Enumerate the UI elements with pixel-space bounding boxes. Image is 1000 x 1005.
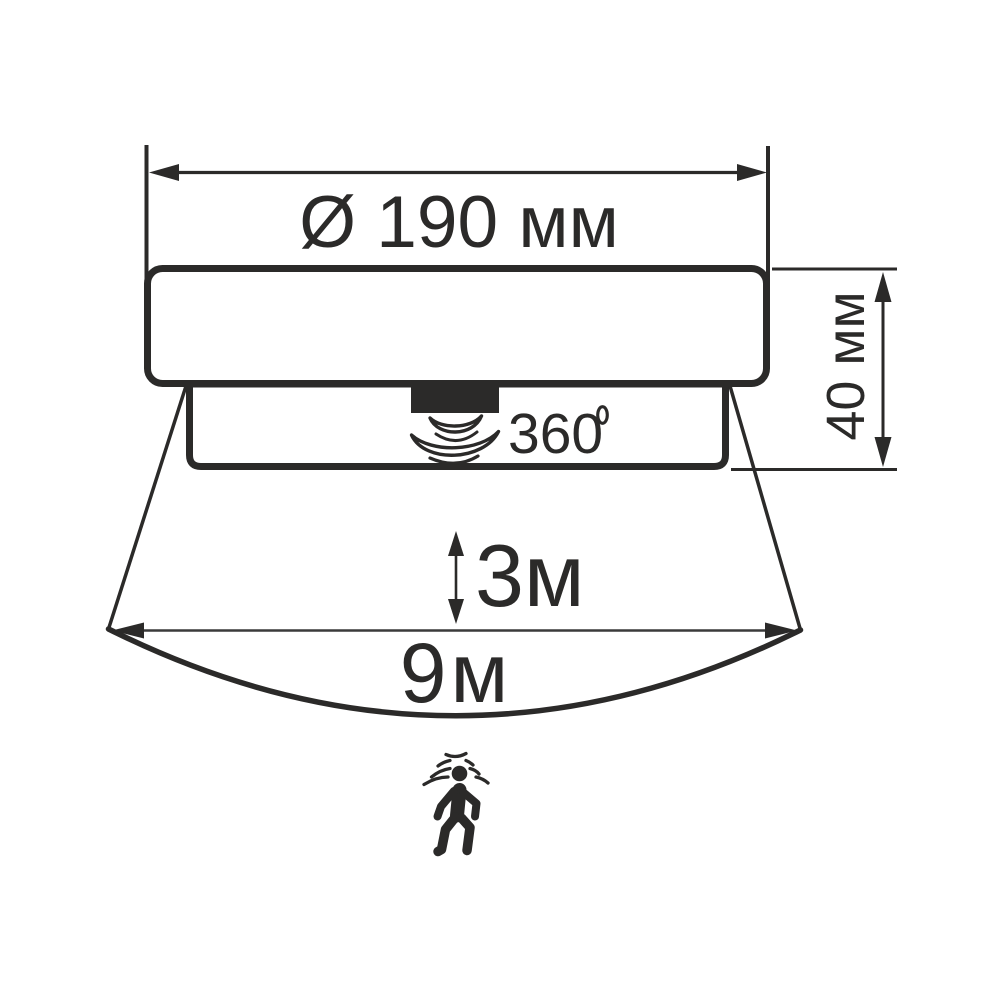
svg-text:40 мм: 40 мм xyxy=(816,291,876,440)
svg-text:9м: 9м xyxy=(400,626,512,720)
svg-text:360: 360 xyxy=(508,402,603,466)
svg-text:3м: 3м xyxy=(475,526,584,625)
svg-text:Ø 190 мм: Ø 190 мм xyxy=(299,182,619,263)
